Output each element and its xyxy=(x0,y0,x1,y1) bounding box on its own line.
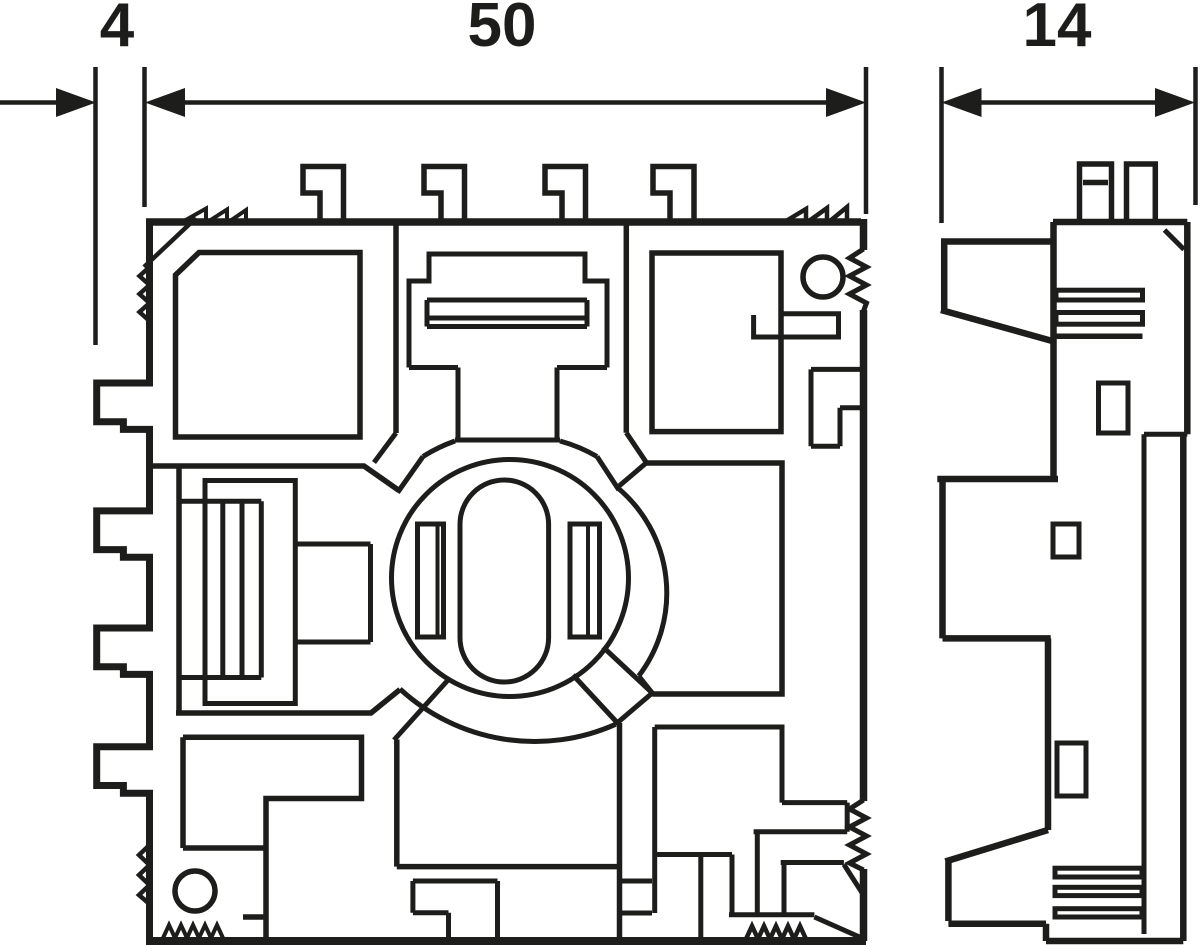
svg-text:14: 14 xyxy=(1023,0,1092,60)
svg-text:4: 4 xyxy=(100,0,135,60)
svg-text:50: 50 xyxy=(468,0,537,60)
